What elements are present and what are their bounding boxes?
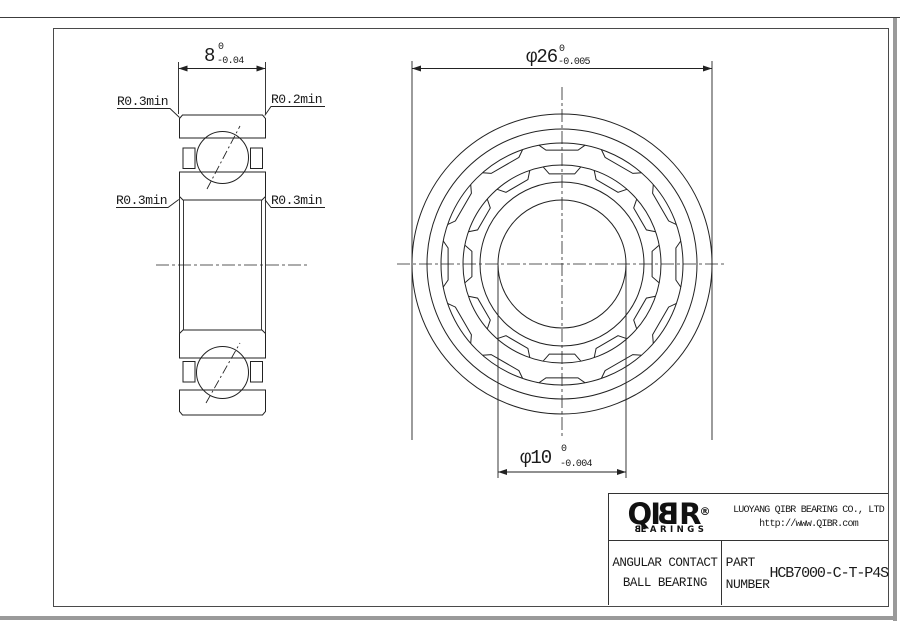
company-url: http://www.QIBR.com — [759, 519, 858, 530]
part-label-line2: NUMBER — [726, 577, 770, 592]
dim-width-value: 8 — [204, 45, 215, 67]
dim-bore-value: φ10 — [520, 447, 552, 469]
callout-mid-left: R0.3min — [116, 193, 167, 208]
logo-mirrored-b: B — [659, 501, 679, 527]
front-view — [397, 87, 727, 437]
brand-cell: QIBR® BEARINGS — [609, 494, 729, 540]
inner-ring-top-section — [180, 172, 266, 200]
cage-top-left-section — [183, 148, 195, 169]
registered-trademark-icon: ® — [699, 505, 710, 518]
callout-mid-right: R0.3min — [271, 193, 322, 208]
outer-ring-top-section — [180, 115, 266, 138]
cage-bottom-left-section — [183, 362, 195, 383]
callout-top-right: R0.2min — [271, 92, 322, 107]
outer-ring-bottom-section — [180, 390, 266, 415]
inner-ring-bottom-section — [180, 330, 266, 358]
contact-angle-line-bottom — [206, 343, 240, 403]
part-number-value: HCB7000-C-T-P4S — [769, 565, 888, 582]
ball-top — [197, 132, 249, 184]
dim-bore-tol-lower: -0.004 — [560, 459, 593, 470]
contact-angle-line-top — [207, 126, 240, 189]
dimension-width: 8 0 -0.04 — [179, 42, 266, 114]
company-name: LUOYANG QIBR BEARING CO., LTD — [733, 505, 884, 516]
cage-top-right-section — [251, 148, 263, 169]
part-number-label: PART NUMBER — [726, 555, 770, 592]
dim-od-value: φ26 — [526, 46, 558, 68]
callout-top-left: R0.3min — [117, 94, 168, 109]
brand-sub-mirrored-b: B — [631, 525, 641, 535]
ball-bottom — [197, 347, 249, 399]
dim-width-tol-upper: 0 — [218, 42, 224, 53]
part-number-cell: PART NUMBER HCB7000-C-T-P4S — [722, 541, 888, 605]
dim-od-tol-lower: -0.005 — [558, 57, 591, 68]
title-block: QIBR® BEARINGS LUOYANG QIBR BEARING CO.,… — [608, 493, 888, 605]
company-cell: LUOYANG QIBR BEARING CO., LTD http://www… — [729, 494, 888, 540]
dim-bore-tol-upper: 0 — [561, 444, 567, 455]
part-label-line1: PART — [726, 555, 770, 570]
product-name-line1: ANGULAR CONTACT — [612, 556, 717, 570]
product-name-line2: BALL BEARING — [623, 576, 707, 590]
dim-width-tol-lower: -0.04 — [217, 56, 244, 67]
title-block-detail-row: ANGULAR CONTACT BALL BEARING PART NUMBER… — [609, 541, 888, 605]
dim-od-tol-upper: 0 — [559, 44, 565, 55]
product-cell: ANGULAR CONTACT BALL BEARING — [609, 541, 722, 605]
drawing-sheet: 8 0 -0.04 R0.3min R0.2min R0.3min R0.3mi… — [0, 0, 900, 636]
title-block-header-row: QIBR® BEARINGS LUOYANG QIBR BEARING CO.,… — [609, 494, 888, 541]
brand-logo: QIBR® — [628, 499, 711, 527]
radius-callouts: R0.3min R0.2min R0.3min R0.3min — [116, 92, 325, 208]
section-view — [156, 115, 308, 415]
cage-bottom-right-section — [251, 362, 263, 383]
